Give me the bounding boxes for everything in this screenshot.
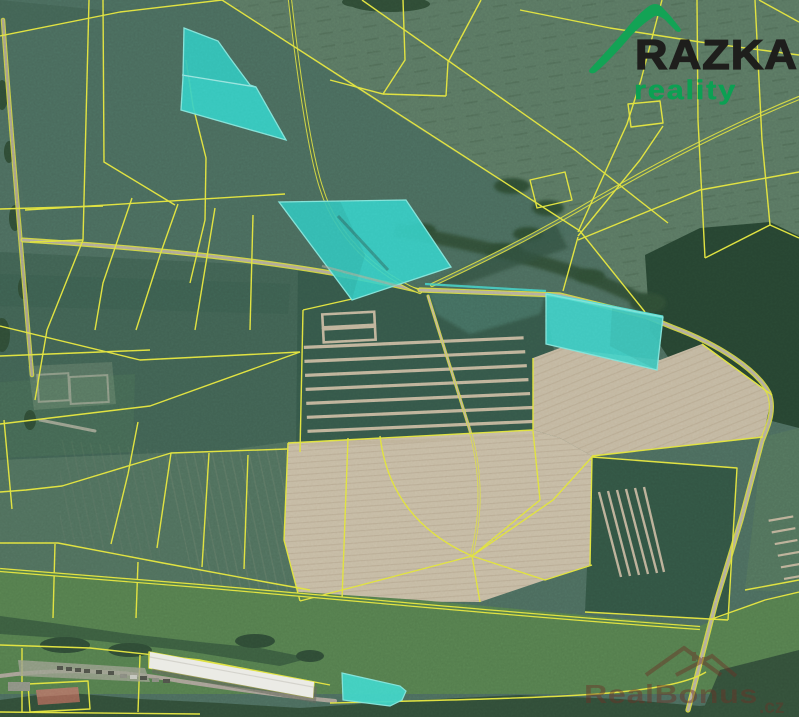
svg-text:.cz: .cz [759,697,784,717]
svg-text:RAZKA: RAZKA [635,31,798,78]
svg-text:RealBonus: RealBonus [584,679,758,709]
svg-text:reality: reality [634,75,737,105]
